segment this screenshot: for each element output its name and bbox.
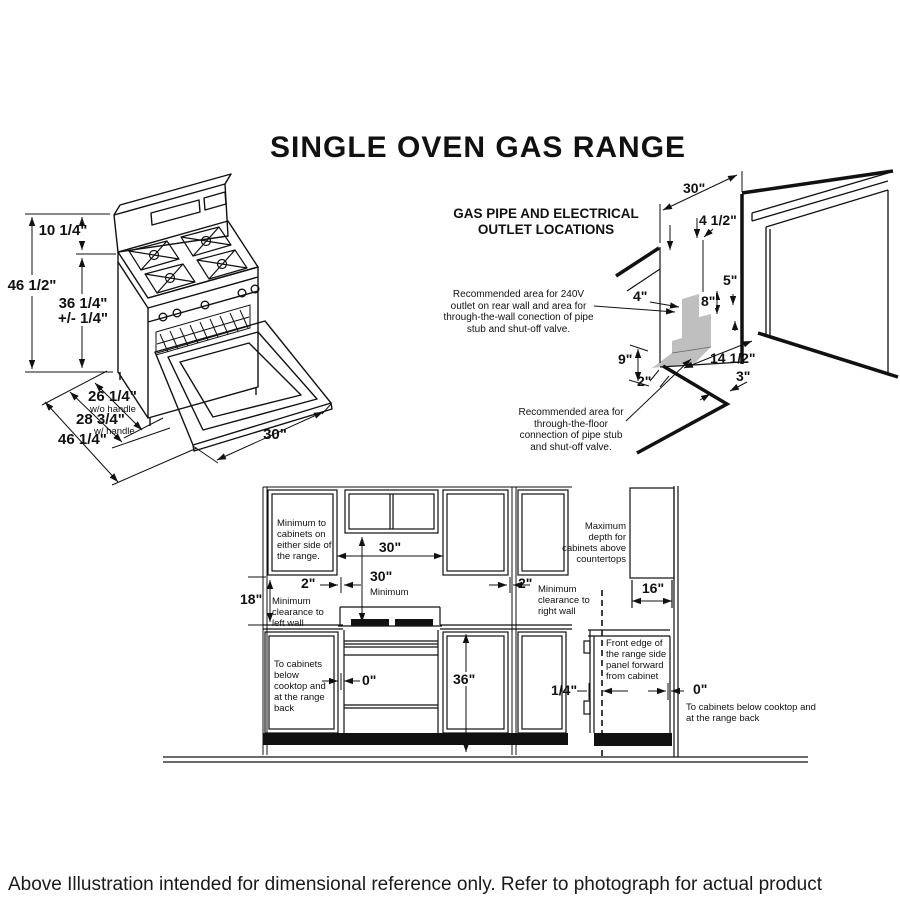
gas-pipe-heading-line2: OUTLET LOCATIONS (446, 222, 646, 238)
clearance-dim-2-right: 2" (518, 576, 532, 590)
gas-floor-note: Recommended area for through-the-floor c… (512, 407, 630, 453)
clearance-dim-0-right: 0" (693, 682, 707, 696)
clearance-dim-18: 18" (240, 592, 262, 606)
range-burner-grates (129, 227, 247, 293)
sideview-toe-kick (594, 733, 672, 746)
diagram-page: SINGLE OVEN GAS RANGE 10 1/4" 46 1/2" 36… (0, 0, 900, 900)
clearance-dim-36: 36" (452, 672, 476, 686)
clearance-dim-0-left: 0" (362, 673, 376, 687)
sideview-structure (630, 486, 678, 757)
gas-dim-2: 2" (637, 374, 651, 388)
floor-line (163, 757, 808, 762)
clearance-below-cooktop-note: To cabinets below cooktop and at the ran… (274, 659, 334, 714)
clearance-front-edge-note: Front edge of the range side panel forwa… (606, 638, 672, 682)
gas-dim-30: 30" (683, 181, 705, 195)
elevation-toe-kick (263, 733, 568, 745)
clearance-below-cooktop-note-right: To cabinets below cooktop and at the ran… (686, 702, 820, 724)
clearance-dim-16: 16" (637, 581, 669, 595)
clearance-right-wall-note: Minimum clearance to right wall (538, 584, 608, 617)
range-open-door (155, 321, 332, 451)
clearance-side-cabinet-note: Minimum to cabinets on either side of th… (277, 518, 339, 562)
clearance-dim-30-vertical-note: Minimum (370, 587, 409, 598)
page-title: SINGLE OVEN GAS RANGE (270, 131, 686, 165)
elevation-grate-bar-left (351, 619, 389, 626)
dim-cooktop-height: 36 1/4" (56, 296, 110, 311)
gas-cabinet (752, 173, 888, 374)
clearance-max-depth-note: Maximum depth for cabinets above counter… (560, 521, 626, 565)
dim-overall-height: 46 1/2" (4, 278, 60, 293)
footer-disclaimer: Above Illustration intended for dimensio… (8, 874, 896, 900)
dim-range-width: 30" (258, 427, 292, 442)
dim-depth-without-handle: 26 1/4" (88, 389, 137, 404)
dim-depth-door-open: 46 1/4" (58, 432, 107, 447)
clearance-left-wall-note: Minimum clearance to left wall (272, 596, 334, 629)
clearance-dim-2-left: 2" (301, 576, 315, 590)
dim-cooktop-height-tolerance: +/- 1/4" (56, 311, 110, 326)
dim-backsplash-height: 10 1/4" (20, 223, 106, 238)
gas-dim-9: 9" (618, 352, 632, 366)
gas-dim-4-half: 4 1/2" (699, 213, 737, 227)
gas-dim-14-half: 14 1/2" (710, 351, 756, 365)
clearance-dim-quarter: 1/4" (551, 683, 577, 697)
gas-dim-5: 5" (723, 273, 737, 287)
gas-dim-4: 4" (633, 289, 647, 303)
gas-wall-note: Recommended area for 240V outlet on rear… (440, 289, 597, 335)
gas-dim-8: 8" (700, 294, 716, 308)
clearance-dim-30-vertical: 30" (370, 569, 392, 583)
elevation-grate-bar-right (395, 619, 433, 626)
gas-pipe-heading-line1: GAS PIPE AND ELECTRICAL (446, 206, 646, 222)
gas-walls-thick (616, 171, 898, 453)
gas-dim-3: 3" (736, 369, 750, 383)
dim-depth-with-handle: 28 3/4" (76, 412, 125, 427)
clearance-dim-30-top: 30" (372, 540, 408, 554)
